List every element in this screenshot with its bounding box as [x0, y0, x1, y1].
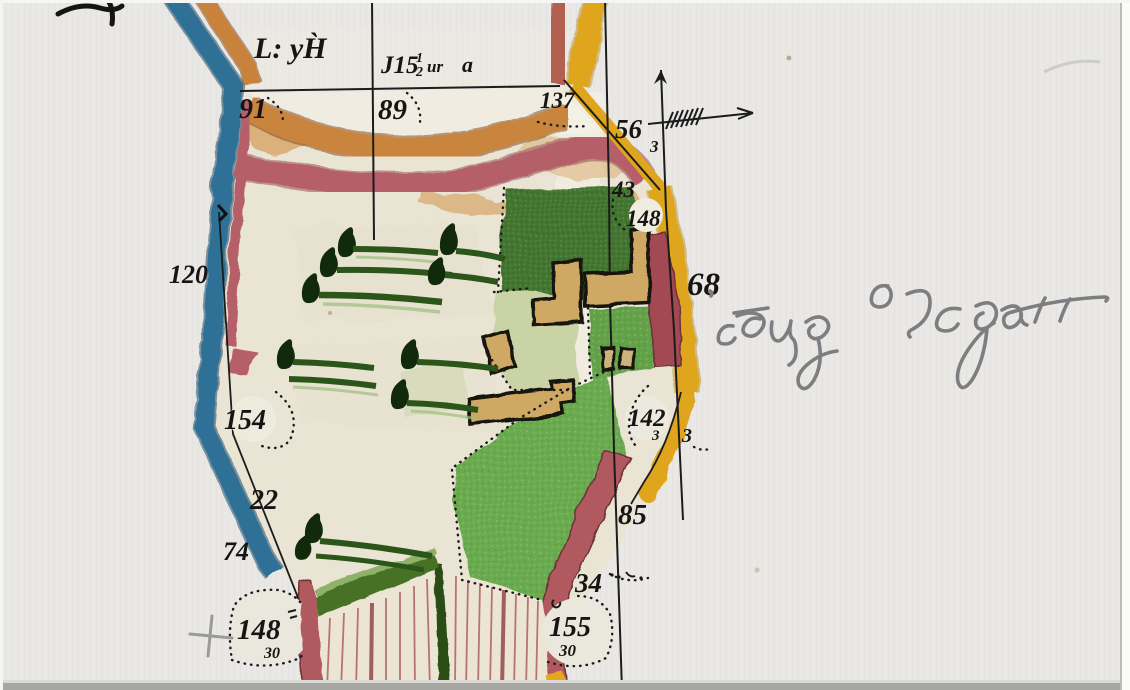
svg-text:L: yH̀: L: yH̀ [253, 32, 328, 65]
svg-text:68: 68 [687, 267, 720, 303]
svg-text:155: 155 [549, 612, 591, 643]
svg-text:148: 148 [626, 206, 661, 231]
svg-text:1: 1 [416, 51, 423, 66]
svg-text:74: 74 [223, 537, 249, 566]
svg-text:85: 85 [618, 499, 647, 531]
svg-text:142: 142 [628, 405, 666, 432]
svg-text:a: a [462, 52, 473, 77]
svg-text:3: 3 [649, 137, 659, 156]
svg-text:ur: ur [427, 57, 443, 76]
svg-text:148: 148 [237, 614, 281, 646]
svg-text:30: 30 [558, 641, 577, 660]
svg-text:J15: J15 [380, 52, 419, 79]
svg-text:22: 22 [249, 485, 278, 516]
svg-text:56: 56 [615, 114, 643, 144]
svg-text:43: 43 [611, 177, 635, 202]
svg-text:30: 30 [263, 645, 280, 662]
svg-text:3: 3 [681, 425, 692, 447]
svg-text:120: 120 [169, 260, 208, 289]
svg-text:2: 2 [415, 65, 423, 80]
svg-text:154: 154 [224, 405, 266, 436]
svg-text:34: 34 [574, 568, 602, 598]
svg-text:91: 91 [239, 94, 267, 125]
svg-text:89: 89 [378, 94, 407, 126]
svg-text:137: 137 [540, 88, 576, 113]
svg-text:3: 3 [651, 428, 660, 444]
